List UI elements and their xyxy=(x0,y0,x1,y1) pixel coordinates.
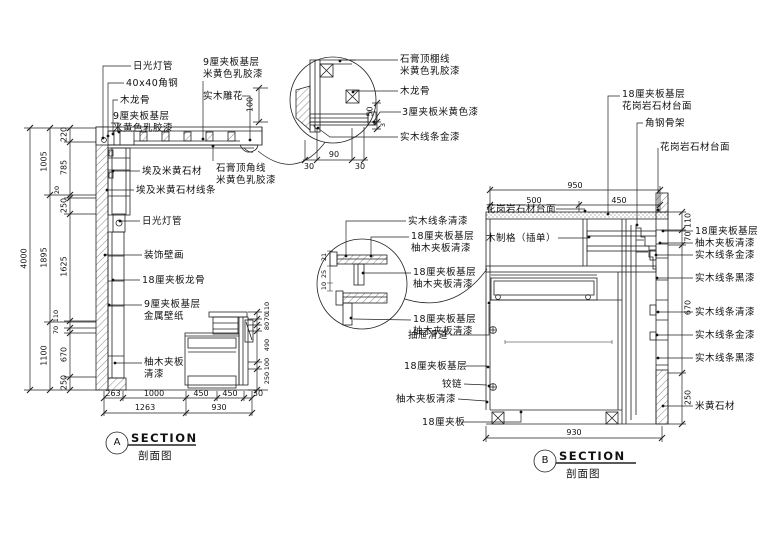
callout-label: 实木雕花 xyxy=(203,91,243,103)
dim-label: 1625 xyxy=(60,247,69,287)
section-b-marker-title: SECTION xyxy=(559,449,626,463)
dim-label: 90 xyxy=(312,150,356,159)
callout-label: 18厘夹板基层 xyxy=(695,226,758,238)
callout-label: 花岗岩石材台面 xyxy=(486,204,556,216)
callout-label: 埃及米黄石材 xyxy=(142,166,202,178)
callout-label: 3厘夹板米黄色漆 xyxy=(402,107,479,119)
callout-label: 18厘夹板基层花岗岩石材台面 xyxy=(622,89,692,112)
callout-label: 实木线条清漆 xyxy=(408,216,468,228)
callout-label: 装饰壁画 xyxy=(144,250,184,262)
callout-label: 18厘夹板基层柚木夹板清漆 xyxy=(413,267,476,290)
callout-label: 实木线条清漆 xyxy=(695,307,755,319)
callout-label: 米黄石材 xyxy=(695,401,735,413)
dim-label: 3 xyxy=(379,105,387,145)
section-a-marker-title: SECTION xyxy=(131,431,198,445)
callout-label: 石膏顶棚线米黄色乳胶漆 xyxy=(400,54,460,77)
section-a-marker-letter: A xyxy=(108,437,126,448)
callout-label: 9厘夹板基层米黄色乳胶漆 xyxy=(203,57,263,80)
callout-label: 柚木夹板清漆 xyxy=(144,357,184,380)
drawing-linework xyxy=(0,0,760,537)
callout-label: 柚木夹板清漆 xyxy=(396,394,456,406)
callout-label: 18厘夹板基层 xyxy=(404,361,467,373)
callout-label: 18厘夹板龙骨 xyxy=(142,275,205,287)
dim-label: 1100 xyxy=(40,336,49,376)
dim-label: 1005 xyxy=(40,142,49,182)
dim-label: 250 xyxy=(684,378,693,418)
dim-label: 10 xyxy=(320,266,328,306)
callout-label: 实木线条金漆 xyxy=(695,330,755,342)
callout-label: 花岗岩石材台面 xyxy=(660,142,730,154)
callout-label: 40x40角钢 xyxy=(126,78,178,90)
dim-label: 100 xyxy=(246,85,255,125)
callout-label: 实木线条黑漆 xyxy=(695,273,755,285)
dim-label: 50 xyxy=(366,92,375,132)
callout-label: 实木线条金漆 xyxy=(400,132,460,144)
callout-label: 角钢骨架 xyxy=(645,118,685,130)
section-a-marker-subtitle: 剖面图 xyxy=(138,448,173,463)
callout-label: 9厘夹板基层金属壁纸 xyxy=(144,299,201,322)
dim-label: 30 xyxy=(287,162,331,171)
callout-label: 柚木夹板清漆 xyxy=(695,238,755,250)
dim-label: 500 xyxy=(512,196,556,205)
dim-label: 30 xyxy=(338,162,382,171)
callout-label: 木龙骨 xyxy=(120,95,150,107)
dim-label: 950 xyxy=(553,181,597,190)
section-a-cabinet xyxy=(185,312,253,388)
cad-section-drawing: 日光灯管 40x40角钢 木龙骨 9厘夹板基层米黄色乳胶漆 9厘夹板基层米黄色乳… xyxy=(0,0,760,537)
callout-label: 9厘夹板基层米黄色乳胶漆 xyxy=(113,111,173,134)
dim-label: 450 xyxy=(597,196,641,205)
callout-label: 木龙骨 xyxy=(400,86,430,98)
callout-label: 日光灯管 xyxy=(142,216,182,228)
dim-label: 670 xyxy=(684,288,693,328)
dim-label: 30 xyxy=(236,389,280,398)
section-b-marker-letter: B xyxy=(536,455,554,466)
dim-label: 1895 xyxy=(40,238,49,278)
section-b-dimensions xyxy=(483,186,686,442)
callout-label: 日光灯管 xyxy=(133,61,173,73)
dim-label: 250 xyxy=(60,363,69,403)
dim-label: 4000 xyxy=(20,239,29,279)
callout-label: 18厘夹板基层柚木夹板清漆 xyxy=(413,314,476,337)
callout-label: 18厘夹板 xyxy=(422,417,465,429)
section-b-counter xyxy=(486,193,668,424)
dim-label: 1000 xyxy=(132,389,176,398)
section-b-marker-subtitle: 剖面图 xyxy=(566,466,601,481)
callout-label: 石膏顶角线米黄色乳胶漆 xyxy=(216,163,276,186)
dim-label: 70 xyxy=(684,217,693,257)
dim-label: 263 xyxy=(91,389,135,398)
callout-label: 实木线条黑漆 xyxy=(695,353,755,365)
callout-label: 铰链 xyxy=(442,379,462,391)
callout-label: 埃及米黄石材线条 xyxy=(136,185,216,197)
dim-label: 250 xyxy=(60,186,69,226)
dim-label: 930 xyxy=(552,428,596,437)
callout-label: 木制格（插单） xyxy=(486,233,556,245)
callout-label: 实木线条金漆 xyxy=(695,250,755,262)
detail-a-bubble xyxy=(253,57,381,164)
dim-label: 930 xyxy=(197,403,241,412)
dim-label: 1263 xyxy=(123,403,167,412)
callout-label: 18厘夹板基层柚木夹板清漆 xyxy=(411,231,474,254)
